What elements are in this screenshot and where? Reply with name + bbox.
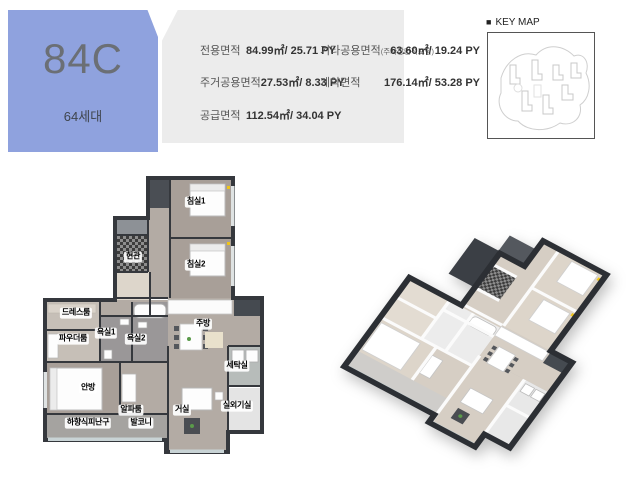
room-label-laundry: 세탁실 — [224, 361, 249, 372]
unit-code: 84C — [43, 38, 123, 80]
keymap-title: ■ KEY MAP — [486, 17, 540, 28]
room-label-kitchen: 주방 — [194, 319, 212, 330]
square-bullet-icon: ■ — [486, 18, 491, 27]
unit-type-badge: 84C 64세대 — [8, 10, 158, 152]
keymap-sketch — [488, 33, 593, 137]
room-label-bath1: 욕실1 — [95, 328, 117, 339]
room-label-living: 거실 — [173, 405, 191, 416]
area-value: 176.14㎡/ 53.28 PY — [360, 78, 480, 89]
page: 84C 64세대 전용면적 84.99㎡/ 25.71 PY 주거공용면적 27… — [0, 0, 640, 480]
area-label: 계약면적 — [320, 78, 360, 89]
room-label-ac-unit: 실외기실 — [221, 401, 253, 412]
area-row-contract: 계약면적 — [320, 78, 360, 89]
room-label-powderroom: 파우더룸 — [57, 334, 89, 345]
area-value: 112.54㎡/ 34.04 PY — [246, 111, 341, 122]
room-label-alpharoom: 알파룸 — [118, 405, 143, 416]
area-label: 주거공용면적 — [200, 78, 261, 89]
room-label-dressroom: 드레스룸 — [60, 308, 92, 319]
room-label-bedroom1: 침실1 — [185, 197, 207, 208]
area-label: 전용면적 — [200, 46, 246, 57]
room-label-escape-hatch: 하향식피난구 — [65, 418, 111, 429]
unit-households: 64세대 — [64, 106, 102, 125]
room-label-entrance: 현관 — [124, 252, 142, 263]
room-label-bedroom2: 침실2 — [185, 260, 207, 271]
keymap-box — [487, 32, 595, 139]
room-label-bath2: 욕실2 — [125, 334, 147, 345]
area-value: 63.60㎡/ 19.24 PY — [360, 46, 480, 57]
room-label-master: 안방 — [79, 383, 97, 394]
area-row-supply: 공급면적 112.54㎡/ 34.04 PY — [200, 111, 341, 122]
area-label: 공급면적 — [200, 111, 246, 122]
room-label-balcony: 발코니 — [128, 418, 153, 429]
keymap-title-text: KEY MAP — [495, 17, 539, 28]
area-row-exclusive: 전용면적 84.99㎡/ 25.71 PY — [200, 46, 336, 57]
floor-plan-3d — [328, 180, 640, 480]
